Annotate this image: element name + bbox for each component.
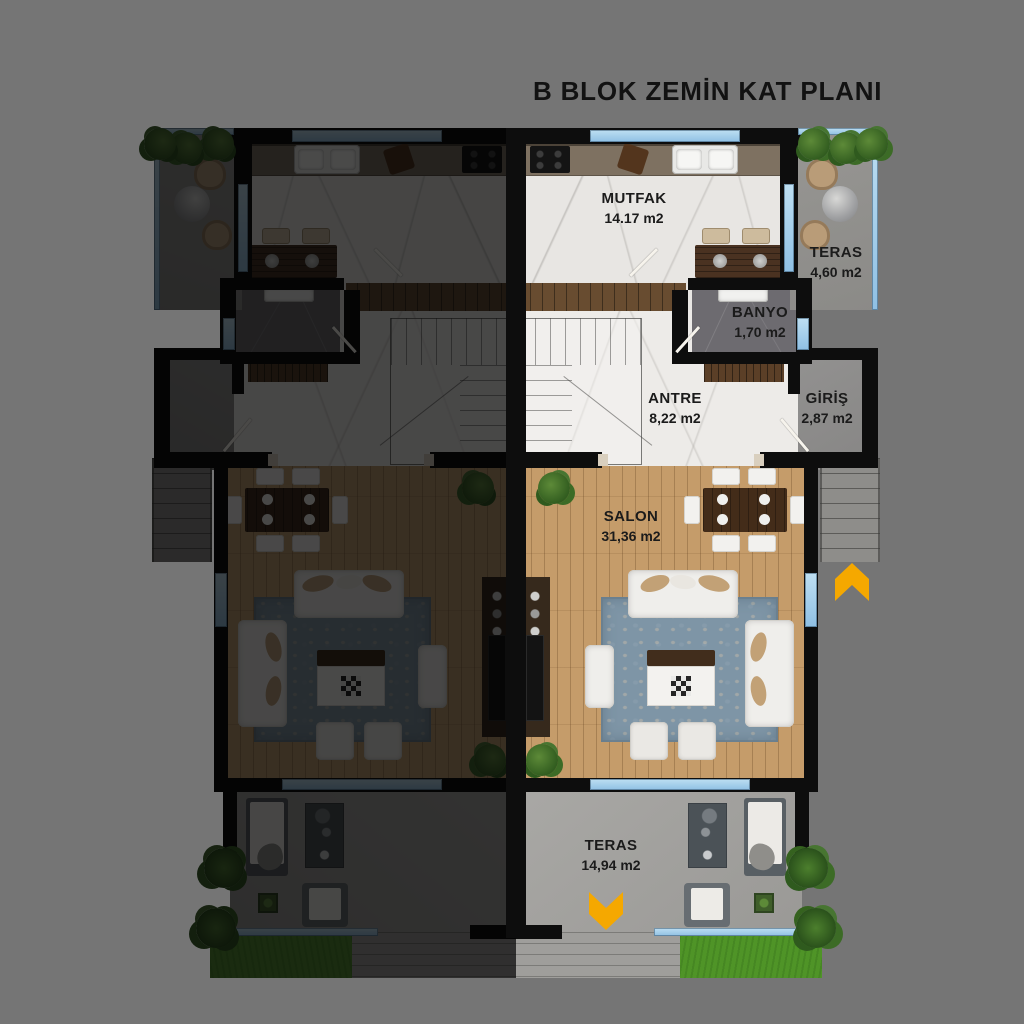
ottoman [364,722,402,760]
terrace-chair [202,220,232,250]
room-label-antre: ANTRE 8,22 m2 [648,389,702,427]
island-stool [742,228,770,244]
unit-a-plan-darkened [148,120,516,978]
palm-plant [196,908,236,948]
island-faucet [265,254,279,268]
coffee-table-tray [647,650,715,666]
cushion [309,888,341,920]
terrace-chair [806,158,838,190]
plant [798,128,830,160]
sofa-pillow [749,675,769,707]
dining-chair [256,468,284,485]
cushion [691,888,723,920]
chessboard [671,676,691,696]
dining-chair [292,468,320,485]
dining-chair [712,468,740,485]
tv [526,635,544,721]
terrace-dining-table [305,803,344,868]
terrace-armchair [302,883,348,927]
island-stool [302,228,330,244]
wall [154,452,272,468]
stair-landing-deck [346,283,514,311]
wall [688,278,800,290]
door-frame [268,454,278,466]
room-name: GİRİŞ [801,389,852,409]
terrace-table [822,186,858,222]
sofa [238,620,287,727]
sofa [745,620,794,727]
room-label-teras-alt: TERAS 14,94 m2 [581,836,640,874]
room-name: MUTFAK [602,189,667,209]
wall [214,468,228,790]
plan-title: B BLOK ZEMİN KAT PLANI [533,76,882,107]
coffee-table [647,666,715,706]
island-faucet [713,254,727,268]
sofa-pillow [669,573,697,590]
dining-chair [332,496,348,524]
terrace-armchair [684,883,730,927]
staircase [520,318,642,465]
plant [474,744,506,776]
shoe-bench [248,364,328,382]
kitchen-sink [294,145,360,174]
kitchen-island [242,245,337,278]
terrace-table [174,186,210,222]
door-frame [598,454,608,466]
entry-steps [152,458,212,562]
sofa-pillow [748,631,770,664]
stair-winder-line [563,376,652,446]
cooktop [530,146,570,173]
room-name: TERAS [810,243,863,263]
plant [526,744,558,776]
wall [430,452,516,468]
stair-landing-deck [518,283,686,311]
wall [760,452,878,468]
wall [672,290,688,364]
party-wall [506,128,526,938]
sofa-pillow [301,572,336,594]
window-glass [590,779,750,790]
plate [262,514,273,525]
door-frame [754,454,764,466]
dining-chair [748,535,776,552]
sofa-pillow [335,573,363,590]
wall [344,290,360,364]
stair-treads [460,365,512,465]
room-area: 31,36 m2 [601,527,660,545]
bench-seat [418,645,447,708]
room-label-teras-ust: TERAS 4,60 m2 [810,243,863,281]
sink-basin [676,149,702,170]
kitchen-sink [672,145,738,174]
room-name: ANTRE [648,389,702,409]
palm-plant [796,908,836,948]
shoe-bench [704,364,784,382]
palm-plant [788,848,828,888]
palm-plant [204,848,244,888]
island-faucet [305,254,319,268]
room-label-mutfak: MUTFAK 14.17 m2 [602,189,667,227]
room-area: 4,60 m2 [810,263,863,281]
plate [304,514,315,525]
room-label-giris: GİRİŞ 2,87 m2 [801,389,852,427]
room-area: 8,22 m2 [648,409,702,427]
sink-basin [298,149,324,170]
plant [538,472,570,504]
wall [516,452,602,468]
room-area: 14.17 m2 [602,209,667,227]
room-name: TERAS [581,836,640,856]
wall [804,468,818,790]
room-area: 14,94 m2 [581,856,640,874]
plate [759,514,770,525]
daybed [744,798,786,876]
dining-chair [226,496,242,524]
bathroom-sink [718,288,768,302]
ottoman [630,722,668,760]
room-name: SALON [601,507,660,527]
planter-box [754,893,774,913]
coffee-table [317,666,385,706]
sink-basin [330,149,356,170]
staircase [390,318,512,465]
window-glass [223,318,235,350]
dining-chair [748,468,776,485]
window-glass [282,779,442,790]
window-glass [292,130,442,142]
wall [232,278,344,290]
sofa-pillow [638,572,671,596]
ottoman [678,722,716,760]
stair-winder-line [380,376,469,446]
door-frame [424,454,434,466]
tv [488,635,506,721]
dining-chair [256,535,284,552]
stair-treads [520,365,572,465]
room-area: 2,87 m2 [801,409,852,427]
sofa-pillow [360,572,393,596]
plant [202,128,234,160]
island-stool [262,228,290,244]
plate [304,494,315,505]
stair-treads [520,318,642,365]
wall [862,348,878,468]
sink-basin [708,149,734,170]
dining-chair [712,535,740,552]
bench-seat [585,645,614,708]
terrace-dining-table [688,803,727,868]
room-label-banyo: BANYO 1,70 m2 [732,303,788,341]
dining-table [703,488,787,532]
plant [462,472,494,504]
room-name: BANYO [732,303,788,323]
room-area: 1,70 m2 [732,323,788,341]
wall [232,360,244,394]
dining-chair [684,496,700,524]
terrace-chair [194,158,226,190]
entry-steps [820,458,880,562]
stair-treads [390,318,512,365]
ottoman [316,722,354,760]
floor-plan-canvas: B BLOK ZEMİN KAT PLANI [0,0,1024,1024]
cooktop [462,146,502,173]
kitchen-island [695,245,790,278]
wall [788,360,800,394]
terrace-railing-glass [236,928,378,936]
wall [154,348,170,468]
window-glass [215,573,227,627]
terrace-railing-glass [654,928,796,936]
coffee-table-tray [317,650,385,666]
window-glass [590,130,740,142]
entrance-chevron-up-icon [835,563,869,601]
island-faucet [753,254,767,268]
plate [262,494,273,505]
sofa [628,570,738,618]
dining-table [245,488,329,532]
plant [144,128,176,160]
window-glass [805,573,817,627]
chessboard [341,676,361,696]
window-glass [797,318,809,350]
planter-box [258,893,278,913]
plant [856,128,888,160]
window-glass [238,184,248,272]
window-glass [784,184,794,272]
sofa-pillow [263,631,285,664]
sofa-pillow [264,675,284,707]
dining-chair [292,535,320,552]
bathroom-sink [264,288,314,302]
sofa [294,570,404,618]
room-label-salon: SALON 31,36 m2 [601,507,660,545]
plate [759,494,770,505]
unit-b-plan: MUTFAK 14.17 m2 TERAS 4,60 m2 BANYO 1,70… [516,120,884,978]
sofa-pillow [697,572,732,594]
island-stool [702,228,730,244]
plate [717,494,728,505]
daybed [246,798,288,876]
plate [717,514,728,525]
